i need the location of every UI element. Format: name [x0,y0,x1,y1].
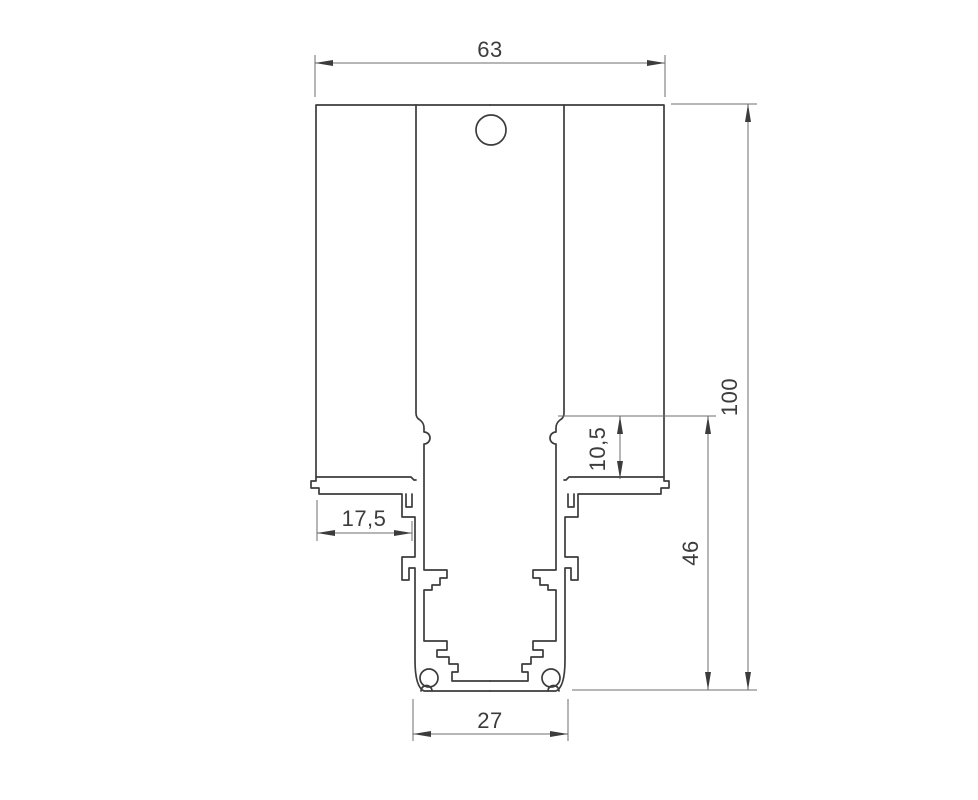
dim-pocket-depth-label: 10,5 [585,427,610,472]
dim-wing-width-label: 17,5 [342,506,387,531]
channel-wall [416,105,490,681]
arrow-right-icon [550,731,568,737]
dim-track-width-label: 27 [477,708,502,733]
wing-inner-bottom [316,477,416,480]
arrow-down-icon [705,672,711,690]
arrow-left-icon [315,60,333,66]
clip-notch [406,494,412,507]
profile-half-outline [311,105,490,691]
arrow-up-icon [745,104,751,122]
profile-drawing-svg: 63 100 46 10,5 [0,0,978,800]
arrow-up-icon [705,416,711,434]
arrow-down-icon [745,672,751,690]
dim-track-height: 46 [558,416,716,690]
arrow-right-icon [647,60,665,66]
profile-half-mirror [490,105,669,691]
arrow-left-icon [317,530,335,536]
dim-pocket-depth: 10,5 [585,416,623,479]
arrow-left-icon [413,731,431,737]
dim-track-width: 27 [413,699,568,741]
arrow-up-icon [617,416,623,434]
dim-wing-width: 17,5 [317,500,412,541]
dim-top-width: 63 [315,37,665,97]
screw-boss [420,669,438,687]
mounting-hole [476,115,506,145]
dim-track-height-label: 46 [678,540,703,565]
profile-outer-contour [311,105,490,691]
dim-top-width-label: 63 [477,37,502,62]
drawing-canvas: 63 100 46 10,5 [0,0,978,800]
dim-overall-height-label: 100 [717,378,742,416]
arrow-right-icon [394,530,412,536]
